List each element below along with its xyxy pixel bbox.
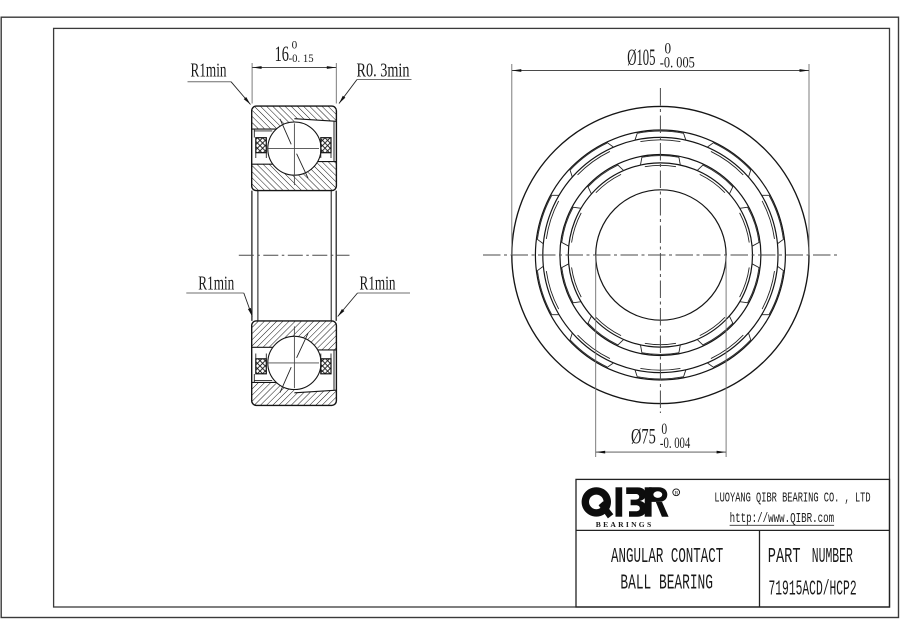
svg-text:Ø105: Ø105 (627, 45, 655, 70)
svg-text:BEARINGS: BEARINGS (596, 520, 652, 529)
svg-text:R1min: R1min (198, 273, 234, 294)
svg-text:R1min: R1min (191, 61, 227, 82)
svg-text:BALL BEARING: BALL BEARING (620, 573, 713, 596)
svg-text:-0. 15: -0. 15 (289, 53, 314, 65)
svg-text:-0. 005: -0. 005 (660, 55, 695, 72)
svg-text:Ø75: Ø75 (631, 423, 656, 448)
svg-text:71915ACD/HCP2: 71915ACD/HCP2 (769, 579, 857, 602)
svg-text:PART: PART (768, 546, 801, 569)
svg-text:16: 16 (275, 42, 289, 66)
svg-text:0: 0 (292, 40, 298, 52)
svg-text:R1min: R1min (360, 273, 396, 294)
svg-text:-0. 004: -0. 004 (660, 435, 691, 452)
svg-text:R: R (675, 490, 679, 496)
svg-text:LUOYANG QIBR BEARING CO. , LTD: LUOYANG QIBR BEARING CO. , LTD (714, 490, 870, 506)
svg-text:http://www.QIBR.com: http://www.QIBR.com (730, 512, 835, 527)
svg-text:ANGULAR CONTACT: ANGULAR CONTACT (611, 546, 723, 569)
svg-text:NUMBER: NUMBER (812, 546, 853, 569)
svg-text:R0. 3min: R0. 3min (357, 61, 410, 82)
